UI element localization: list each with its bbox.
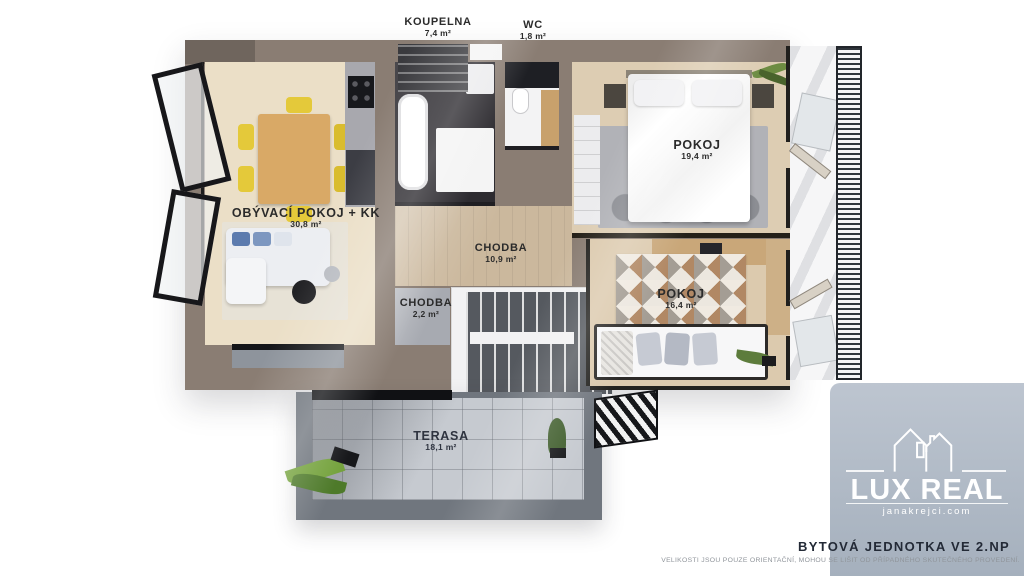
room-name: CHODBA <box>475 242 527 255</box>
coffee-table <box>292 280 316 304</box>
logo-flank-line-left <box>846 470 884 472</box>
floorplan-canvas: KOUPELNA 7,4 m² WC 1,8 m² POKOJ 19,4 m² … <box>0 0 1024 576</box>
kitchen-unit <box>346 150 375 205</box>
room-name: TERASA <box>413 429 469 443</box>
lux-real-house-icon <box>888 423 954 473</box>
daybed-pillow <box>664 332 690 366</box>
room-label-pokoj-19: POKOJ 19,4 m² <box>673 138 720 162</box>
bed-pillow <box>692 80 742 106</box>
nightstand <box>604 84 626 108</box>
room-name: WC <box>520 19 546 32</box>
room-label-pokoj-16: POKOJ 16,4 m² <box>657 287 704 311</box>
cooktop <box>348 76 374 108</box>
room-name: CHODBA <box>400 297 452 310</box>
footer-disclaimer: VELIKOSTI JSOU POUZE ORIENTAČNÍ, MOHOU S… <box>661 557 1020 564</box>
bed-pillow <box>634 80 684 106</box>
top-window-slit <box>470 44 502 60</box>
room-area: 2,2 m² <box>400 310 452 320</box>
room-name: POKOJ <box>657 287 704 301</box>
daybed-blanket <box>601 331 633 375</box>
balcony-slat-railing <box>836 46 862 380</box>
bathtub <box>398 94 428 190</box>
balcony-glass-panel <box>792 315 839 367</box>
room-area: 10,9 m² <box>475 255 527 265</box>
logo-underline <box>846 503 1008 504</box>
wc-cabinet <box>541 90 559 146</box>
terrace-planter <box>550 448 566 458</box>
wc-counter <box>505 62 559 88</box>
washing-machine <box>466 64 494 94</box>
room-label-chodba-2: CHODBA 2,2 m² <box>400 297 452 319</box>
terrace-window-band <box>312 390 452 400</box>
room-label-obyvaci: OBÝVACÍ POKOJ + KK 30,8 m² <box>232 206 380 230</box>
room-name: OBÝVACÍ POKOJ + KK <box>232 206 380 220</box>
logo-flank-line-right <box>962 470 1006 472</box>
logo-website: janakrejci.com <box>830 506 1024 517</box>
room-area: 18,1 m² <box>413 443 469 453</box>
room-area: 16,4 m² <box>657 301 704 311</box>
dining-chair <box>238 166 254 192</box>
pouf <box>324 266 340 282</box>
dining-table <box>258 114 330 204</box>
sofa-pillow <box>232 232 250 246</box>
toilet <box>512 88 529 114</box>
bedroom-wall <box>572 233 790 238</box>
room-area: 19,4 m² <box>673 152 720 162</box>
room-label-koupelna: KOUPELNA 7,4 m² <box>404 16 471 38</box>
sideboard <box>232 350 344 368</box>
study-hall-wall <box>586 239 590 386</box>
study-wall <box>590 386 790 390</box>
room-area: 30,8 m² <box>232 220 380 230</box>
daybed-pillow <box>635 332 662 366</box>
sofa-chaise <box>226 258 266 304</box>
room-label-wc: WC 1,8 m² <box>520 19 546 41</box>
stair-landing <box>470 332 574 344</box>
wc-wall <box>505 146 559 150</box>
daybed-pillow <box>692 332 718 366</box>
roof-corner-shade <box>185 40 255 64</box>
footer-title: BYTOVÁ JEDNOTKA VE 2.NP <box>798 539 1010 554</box>
bedroom-dresser <box>574 115 600 225</box>
dining-chair <box>238 124 254 150</box>
room-area: 1,8 m² <box>520 32 546 42</box>
sofa-pillow <box>253 232 271 246</box>
room-name: KOUPELNA <box>404 16 471 29</box>
room-label-terasa: TERASA 18,1 m² <box>413 429 469 453</box>
room-label-chodba-10: CHODBA 10,9 m² <box>475 242 527 264</box>
hall-wardrobe <box>398 44 468 92</box>
bathroom-vanity <box>436 128 494 192</box>
room-name: POKOJ <box>673 138 720 152</box>
room-area: 7,4 m² <box>404 29 471 39</box>
sofa-pillow <box>274 232 292 246</box>
planter <box>762 356 776 366</box>
nightstand <box>752 84 774 108</box>
exterior-stairs <box>594 390 658 449</box>
dining-chair <box>286 97 312 113</box>
